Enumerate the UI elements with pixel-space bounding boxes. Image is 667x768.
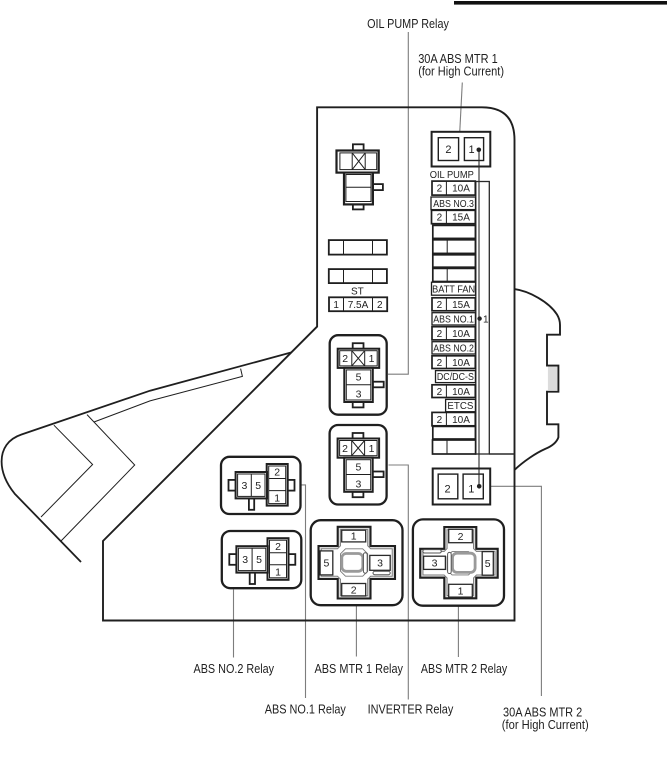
- svg-text:ABS NO.2 Relay: ABS NO.2 Relay: [194, 661, 275, 676]
- svg-text:10A: 10A: [452, 415, 470, 426]
- svg-text:OIL PUMP: OIL PUMP: [430, 170, 475, 181]
- svg-text:1: 1: [468, 144, 474, 156]
- svg-text:2: 2: [458, 531, 464, 543]
- svg-text:DC/DC-S: DC/DC-S: [437, 372, 474, 383]
- svg-text:10A: 10A: [452, 387, 470, 398]
- svg-text:ST: ST: [351, 286, 364, 297]
- svg-text:15A: 15A: [452, 300, 470, 311]
- svg-text:ABS MTR 2 Relay: ABS MTR 2 Relay: [421, 661, 508, 676]
- svg-text:1: 1: [483, 314, 489, 325]
- svg-text:2: 2: [437, 213, 443, 224]
- svg-text:ABS NO.2: ABS NO.2: [433, 343, 474, 354]
- svg-text:2: 2: [437, 387, 443, 398]
- svg-text:1: 1: [468, 483, 474, 495]
- svg-text:2: 2: [437, 358, 443, 369]
- svg-text:7.5A: 7.5A: [348, 300, 369, 311]
- svg-text:2: 2: [437, 415, 443, 426]
- svg-text:2: 2: [351, 584, 357, 596]
- svg-text:1: 1: [458, 585, 464, 597]
- svg-text:5: 5: [485, 558, 491, 570]
- svg-text:(for High Current): (for High Current): [418, 64, 504, 79]
- svg-text:1: 1: [351, 531, 357, 543]
- svg-text:5: 5: [323, 558, 329, 570]
- svg-text:2: 2: [437, 300, 443, 311]
- svg-text:3: 3: [432, 557, 438, 569]
- svg-text:10A: 10A: [452, 358, 470, 369]
- svg-text:(for High Current): (for High Current): [502, 717, 589, 732]
- svg-text:OIL PUMP Relay: OIL PUMP Relay: [367, 16, 449, 31]
- svg-text:2: 2: [444, 483, 450, 495]
- svg-text:15A: 15A: [452, 213, 470, 224]
- svg-text:10A: 10A: [452, 329, 470, 340]
- svg-text:2: 2: [437, 329, 443, 340]
- svg-text:10A: 10A: [452, 184, 470, 195]
- svg-text:ABS NO.3: ABS NO.3: [433, 199, 474, 210]
- svg-text:ABS MTR 1 Relay: ABS MTR 1 Relay: [315, 661, 404, 676]
- svg-text:ABS NO.1 Relay: ABS NO.1 Relay: [265, 701, 347, 716]
- svg-text:ABS NO.1: ABS NO.1: [433, 314, 474, 325]
- svg-text:2: 2: [437, 184, 443, 195]
- svg-text:INVERTER Relay: INVERTER Relay: [368, 701, 454, 716]
- svg-text:2: 2: [377, 300, 383, 311]
- svg-text:BATT FAN: BATT FAN: [432, 284, 475, 295]
- svg-text:2: 2: [445, 144, 451, 156]
- svg-text:ETCS: ETCS: [447, 401, 473, 412]
- svg-text:3: 3: [377, 558, 383, 570]
- svg-text:1: 1: [333, 300, 339, 311]
